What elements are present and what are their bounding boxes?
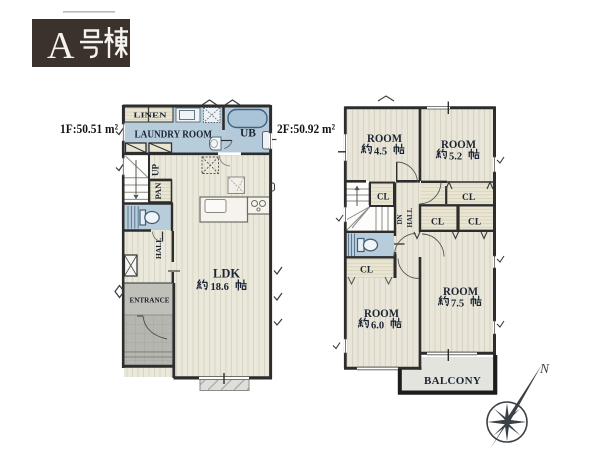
svg-text:UP: UP xyxy=(151,164,161,176)
svg-text:N: N xyxy=(539,361,550,376)
svg-text:5.2: 5.2 xyxy=(449,152,462,163)
svg-text:6.0: 6.0 xyxy=(371,321,384,332)
svg-text:ENTRANCE: ENTRANCE xyxy=(130,296,170,305)
svg-text:HALL: HALL xyxy=(406,207,414,227)
svg-text:1F:50.51 m²: 1F:50.51 m² xyxy=(60,121,118,136)
svg-text:DN: DN xyxy=(396,214,404,224)
svg-text:LINEN: LINEN xyxy=(134,111,168,120)
svg-text:CL: CL xyxy=(431,218,444,228)
svg-text:LAUNDRY ROOM: LAUNDRY ROOM xyxy=(135,130,213,141)
svg-text:2F:50.92 m²: 2F:50.92 m² xyxy=(277,121,335,136)
svg-text:CL: CL xyxy=(360,266,373,276)
svg-text:ROOM: ROOM xyxy=(441,137,476,151)
svg-text:CL: CL xyxy=(468,218,481,228)
svg-text:7.5: 7.5 xyxy=(451,299,464,310)
svg-text:PAN: PAN xyxy=(153,182,163,200)
svg-text:BALCONY: BALCONY xyxy=(424,375,481,387)
svg-text:CL: CL xyxy=(462,193,475,203)
svg-text:ROOM: ROOM xyxy=(443,284,478,298)
svg-text:A: A xyxy=(47,25,75,67)
svg-text:ROOM: ROOM xyxy=(367,131,402,145)
svg-text:CL: CL xyxy=(377,192,390,202)
svg-text:HALL: HALL xyxy=(154,238,163,259)
svg-text:4.5: 4.5 xyxy=(374,147,387,158)
svg-text:LDK: LDK xyxy=(213,267,240,281)
svg-text:UB: UB xyxy=(240,128,256,140)
svg-text:18.6: 18.6 xyxy=(211,282,229,293)
